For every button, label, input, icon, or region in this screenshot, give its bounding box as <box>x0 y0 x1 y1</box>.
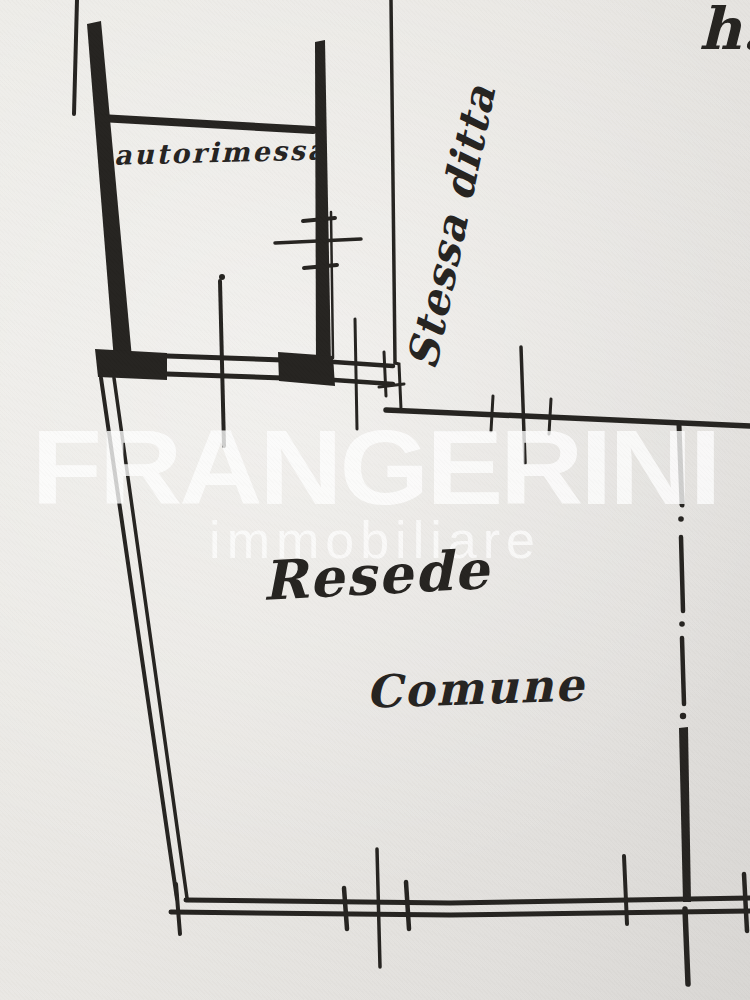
dash-dot-3 <box>680 713 686 719</box>
label-garage: autorimessa <box>114 136 328 169</box>
wall-right-thick <box>315 40 331 369</box>
dash-segment-1 <box>679 425 682 505</box>
line-horizontal-upper <box>386 410 750 426</box>
diagonal-outer <box>101 378 177 899</box>
tick-cross-mid <box>220 281 224 446</box>
jamb-center <box>278 352 335 386</box>
wall-left-thick <box>87 21 133 373</box>
bottom-line-lower <box>171 911 750 915</box>
tick-upper-long <box>521 347 525 463</box>
dash-dot-2 <box>679 621 685 627</box>
bottom-line-upper <box>186 898 750 903</box>
tick-corner <box>176 884 180 934</box>
wall-thin-top-left <box>74 0 77 114</box>
tick-upper-1 <box>491 396 493 431</box>
wall-room-top <box>100 118 313 130</box>
label-height-abbrev: h. <box>699 0 750 58</box>
tick-cross-right-1 <box>355 319 357 429</box>
tick-wall-long <box>275 239 361 243</box>
sill-top-1 <box>167 356 283 360</box>
tick-bottom-long <box>377 849 380 967</box>
tick-bottom-1 <box>344 888 347 929</box>
boundary-vertical-thin <box>391 0 395 363</box>
tick-cross-right-2 <box>384 352 386 396</box>
sill-bottom-1 <box>167 374 283 378</box>
label-yard-comune: Comune <box>365 662 586 715</box>
floorplan-drawing <box>0 0 750 1000</box>
diagonal-inner <box>114 378 187 898</box>
tick-upper-2 <box>549 399 551 434</box>
wall-right-lower-thick <box>679 727 691 902</box>
cadastral-floorplan-photo: FRANGERINI immobiliare autorimessa Stess… <box>0 0 750 1000</box>
dash-dot-1 <box>678 516 684 522</box>
label-yard-resede: Resede <box>261 542 492 608</box>
wall-right-below-line <box>685 909 688 984</box>
dash-segment-3 <box>682 638 684 704</box>
garage-threshold <box>95 274 393 446</box>
dash-segment-2 <box>681 537 683 611</box>
garage-room-walls <box>74 0 361 373</box>
jamb-left <box>95 349 167 380</box>
tick-bottom-4 <box>744 874 747 931</box>
tick-bottom-2 <box>406 882 409 929</box>
wall-right-inner-line <box>331 212 333 358</box>
